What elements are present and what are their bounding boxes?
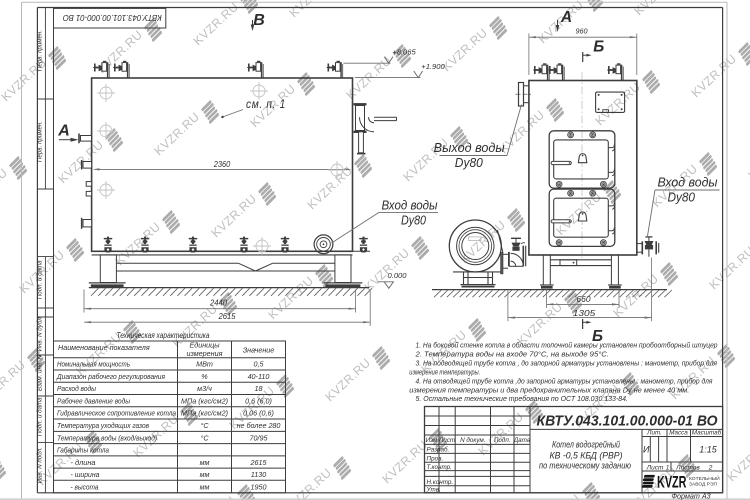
- svg-text:Котел водогрейный: Котел водогрейный: [552, 440, 620, 450]
- svg-text:Перв. примен.: Перв. примен.: [37, 30, 44, 71]
- svg-text:1130: 1130: [251, 470, 266, 479]
- svg-text:N докум.: N докум.: [460, 436, 485, 444]
- svg-text:А: А: [57, 123, 70, 140]
- svg-text:Инв. N дубл.: Инв. N дубл.: [37, 316, 44, 352]
- svg-text:мм: мм: [200, 458, 210, 467]
- svg-text:Формат А3: Формат А3: [671, 492, 710, 500]
- svg-text:Dу80: Dу80: [455, 156, 483, 170]
- svg-text:Техническая характеристика: Техническая характеристика: [117, 331, 210, 340]
- svg-text:- ширина: - ширина: [71, 470, 100, 479]
- svg-text:Габариты котла: Габариты котла: [57, 446, 109, 455]
- svg-text:мм: мм: [200, 482, 210, 491]
- svg-text:2360: 2360: [213, 159, 231, 169]
- svg-text:Подп.: Подп.: [494, 436, 511, 444]
- svg-text:КВ -0,5 КБД (РВР): КВ -0,5 КБД (РВР): [550, 450, 623, 460]
- svg-text:Пров.: Пров.: [427, 456, 444, 463]
- svg-text:1. На боковой стенке котла в: 1. На боковой стенке котла в области топ…: [416, 341, 718, 350]
- svg-text:Значение: Значение: [243, 346, 275, 355]
- svg-text:Вход воды: Вход воды: [382, 199, 438, 213]
- svg-text:Подп. и дата: Подп. и дата: [37, 260, 44, 299]
- svg-text:мм: мм: [200, 470, 210, 479]
- svg-text:измерения: измерения: [187, 349, 223, 358]
- svg-text:18: 18: [255, 384, 263, 393]
- svg-text:И: И: [643, 445, 650, 455]
- svg-text:МПа (кгс/см2): МПа (кгс/см2): [181, 396, 228, 405]
- svg-text:Диапазон рабочего регулировани: Диапазон рабочего регулирования: [56, 372, 165, 381]
- svg-text:Температура воды (вход/выход): Температура воды (вход/выход): [57, 433, 157, 442]
- svg-text:1305: 1305: [573, 308, 596, 318]
- svg-text:1: 1: [666, 465, 670, 472]
- svg-text:Температура уходящих газов: Температура уходящих газов: [57, 421, 149, 430]
- svg-text:Перв. примен.: Перв. примен.: [37, 121, 44, 162]
- svg-text:Выход воды: Выход воды: [434, 141, 505, 155]
- svg-text:0,5: 0,5: [254, 360, 265, 369]
- svg-text:+1.900: +1.900: [421, 62, 445, 71]
- svg-text:Т.контр.: Т.контр.: [427, 464, 452, 471]
- svg-text:Листов: Листов: [675, 465, 700, 472]
- svg-text:Расход воды: Расход воды: [57, 384, 97, 393]
- svg-text:0,06 (0,6): 0,06 (0,6): [243, 409, 274, 418]
- svg-text:2: 2: [708, 465, 713, 472]
- svg-text:Лит.: Лит.: [646, 430, 662, 437]
- svg-text:Разраб.: Разраб.: [427, 445, 450, 453]
- svg-text:2615: 2615: [250, 458, 268, 467]
- svg-text:Утв.: Утв.: [426, 486, 441, 493]
- svg-text:5. Остальные технические треб: 5. Остальные технические требования по О…: [416, 394, 629, 403]
- svg-text:А: А: [560, 9, 572, 26]
- svg-text:Лист: Лист: [646, 465, 664, 472]
- svg-text:4. На отводящей трубе котла ,: 4. На отводящей трубе котла ,до запорной…: [416, 377, 713, 386]
- svg-text:см. п. 1: см. п. 1: [246, 97, 286, 111]
- svg-text:Dу80: Dу80: [401, 214, 426, 228]
- svg-text:KVZR: KVZR: [657, 473, 687, 492]
- svg-text:КВТУ.043.101.00.000-01 ВО: КВТУ.043.101.00.000-01 ВО: [537, 412, 718, 429]
- svg-text:Дата: Дата: [513, 437, 531, 444]
- svg-text:°С: °С: [200, 433, 209, 442]
- svg-text:Dу80: Dу80: [667, 191, 695, 205]
- svg-text:Изм: Изм: [426, 437, 438, 444]
- svg-text:Подп. и дата: Подп. и дата: [37, 397, 44, 436]
- svg-text:660: 660: [577, 294, 591, 304]
- svg-text:2615: 2615: [218, 311, 236, 321]
- svg-text:3. На подводящей трубе котла: 3. На подводящей трубе котла , до запорн…: [416, 358, 718, 367]
- svg-text:+8.065: +8.065: [392, 48, 416, 57]
- svg-text:Взам. инв. N: Взам. инв. N: [37, 354, 44, 391]
- svg-text:1950: 1950: [251, 482, 267, 491]
- svg-text:40-110: 40-110: [248, 372, 270, 381]
- svg-text:Рабочее давление воды: Рабочее давление воды: [57, 396, 131, 405]
- svg-text:Наименование показателя: Наименование показателя: [58, 343, 150, 352]
- svg-text:по техническому заданию: по техническому заданию: [539, 461, 631, 471]
- svg-text:В: В: [253, 12, 265, 29]
- svg-text:ЗАВОД РЭП: ЗАВОД РЭП: [689, 481, 717, 487]
- svg-text:Инв. N подл.: Инв. N подл.: [37, 447, 44, 483]
- svg-text:- высота: - высота: [71, 482, 99, 491]
- svg-text:Лист: Лист: [438, 437, 455, 444]
- svg-text:2440: 2440: [209, 298, 227, 308]
- svg-text:Масса: Масса: [669, 430, 688, 437]
- svg-text:70/95: 70/95: [250, 433, 269, 442]
- svg-text:м3/ч: м3/ч: [197, 384, 212, 393]
- svg-text:Масштаб: Масштаб: [692, 429, 722, 437]
- svg-text:1:15: 1:15: [699, 445, 718, 455]
- svg-text:Гидравлическое сопротивление к: Гидравлическое сопротивление котла: [57, 409, 176, 418]
- svg-text:не более 280: не более 280: [237, 421, 281, 430]
- svg-text:измерения температуры.: измерения температуры.: [409, 367, 480, 376]
- svg-text:0.000: 0.000: [387, 271, 407, 280]
- svg-text:МПа (кгс/см2): МПа (кгс/см2): [181, 409, 228, 418]
- svg-text:°С: °С: [200, 421, 209, 430]
- svg-text:Вход воды: Вход воды: [658, 176, 718, 190]
- svg-text:Номинальная мощность: Номинальная мощность: [57, 360, 130, 369]
- svg-text:МВт: МВт: [196, 360, 213, 369]
- svg-text:Б: Б: [593, 39, 604, 56]
- svg-text:- длина: - длина: [71, 458, 96, 467]
- svg-text:%: %: [201, 372, 208, 381]
- svg-text:Н.контр.: Н.контр.: [427, 479, 454, 486]
- svg-text:2. Температура воды на входе: 2. Температура воды на входе 70°С, на вы…: [414, 350, 609, 359]
- svg-text:0,6 (6,0): 0,6 (6,0): [245, 396, 272, 405]
- svg-text:КВТУ.043.101.00.000-01 ВО: КВТУ.043.101.00.000-01 ВО: [63, 13, 162, 23]
- svg-text:960: 960: [576, 26, 589, 35]
